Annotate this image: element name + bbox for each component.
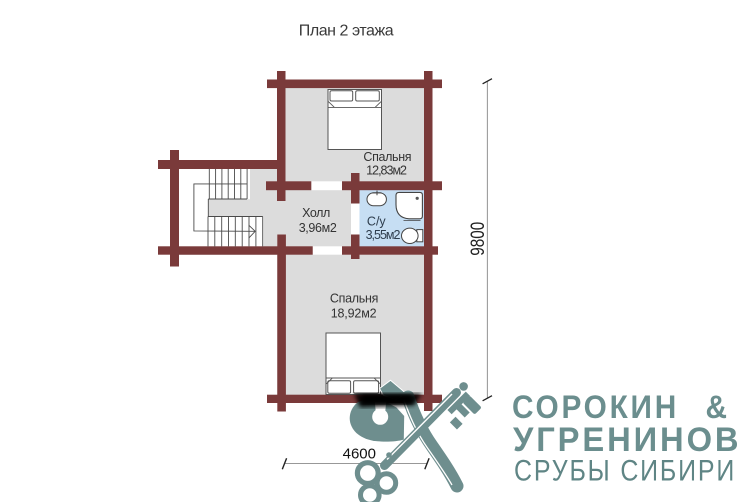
svg-text:Спальня: Спальня — [363, 150, 411, 164]
svg-text:12,83м2: 12,83м2 — [366, 164, 407, 178]
svg-text:Холл: Холл — [302, 206, 330, 220]
svg-text:3,55м2: 3,55м2 — [366, 228, 401, 242]
svg-text:&: & — [705, 389, 727, 425]
svg-text:18,92м2: 18,92м2 — [331, 306, 377, 320]
svg-text:3,96м2: 3,96м2 — [299, 221, 337, 235]
svg-text:9800: 9800 — [467, 222, 489, 256]
svg-text:4600: 4600 — [343, 446, 376, 463]
svg-text:Спальня: Спальня — [330, 292, 378, 306]
svg-text:СОРОКИН: СОРОКИН — [512, 389, 679, 425]
svg-text:СРУБЫ СИБИРИ: СРУБЫ СИБИРИ — [514, 454, 736, 488]
svg-text:План 2 этажа: План 2 этажа — [299, 23, 394, 40]
svg-text:С/у: С/у — [367, 214, 387, 228]
